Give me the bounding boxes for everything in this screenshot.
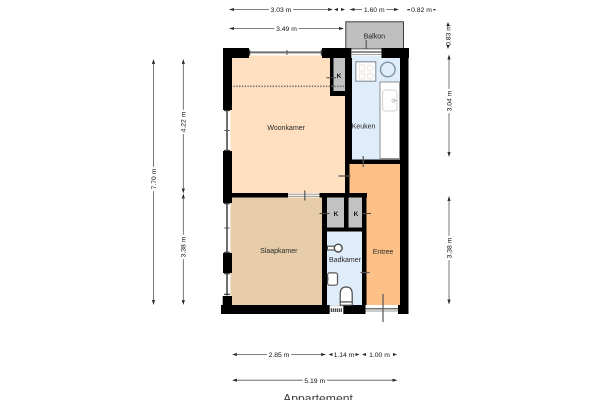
- svg-text:1.60 m: 1.60 m: [364, 7, 385, 14]
- svg-text:2.85 m: 2.85 m: [269, 352, 290, 359]
- svg-text:Appartement: Appartement: [283, 392, 353, 400]
- svg-text:Balkon: Balkon: [364, 34, 386, 41]
- svg-text:3.03 m: 3.03 m: [271, 7, 292, 14]
- svg-text:Badkamer: Badkamer: [329, 257, 362, 264]
- svg-text:1.00 m: 1.00 m: [369, 352, 390, 359]
- svg-text:Slaapkamer: Slaapkamer: [260, 248, 298, 255]
- svg-text:3.49 m: 3.49 m: [276, 26, 297, 33]
- svg-text:K: K: [337, 73, 342, 80]
- svg-text:K: K: [334, 211, 339, 218]
- svg-text:3.38 m: 3.38 m: [446, 237, 453, 258]
- svg-text:0.83 m: 0.83 m: [445, 25, 452, 46]
- svg-text:0.82 m: 0.82 m: [411, 7, 432, 14]
- svg-text:K: K: [354, 211, 359, 218]
- svg-text:7.70 m: 7.70 m: [151, 168, 158, 189]
- svg-text:3.38 m: 3.38 m: [181, 236, 188, 257]
- svg-text:5.19 m: 5.19 m: [304, 378, 325, 385]
- svg-text:1.14 m: 1.14 m: [334, 352, 355, 359]
- svg-text:Entree: Entree: [373, 249, 394, 256]
- svg-text:4.22 m: 4.22 m: [181, 111, 188, 132]
- svg-text:3.04 m: 3.04 m: [446, 90, 453, 111]
- svg-text:Woonkamer: Woonkamer: [267, 125, 305, 132]
- svg-text:Keuken: Keuken: [352, 124, 376, 131]
